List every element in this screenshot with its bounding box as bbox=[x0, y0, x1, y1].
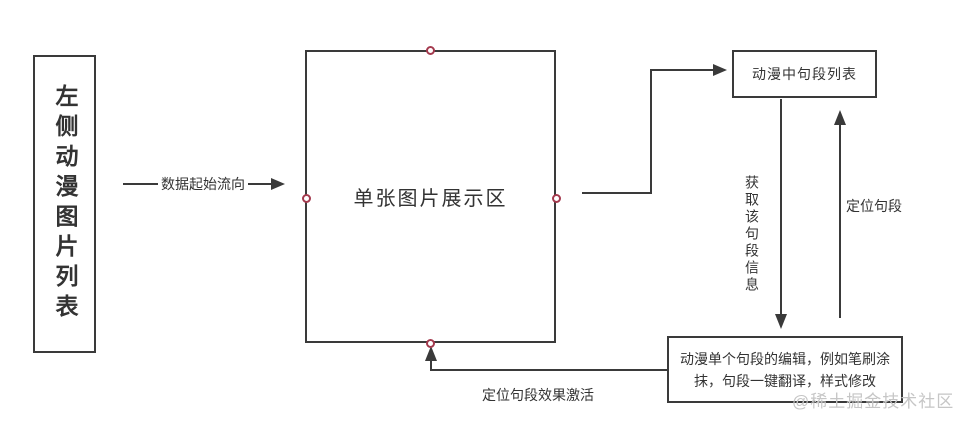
locate-segment-arrow-line bbox=[839, 124, 841, 318]
locate-effect-label: 定位句段效果激活 bbox=[482, 385, 594, 405]
anchor-handle-right bbox=[552, 194, 561, 203]
to-segment-list-arrowhead bbox=[713, 64, 727, 76]
left-image-list-label: 左侧动漫图片列表 bbox=[53, 84, 76, 324]
data-flow-arrowhead bbox=[271, 178, 285, 190]
segment-edit-label: 动漫单个句段的编辑，例如笔刷涂抹，句段一键翻译，样式修改 bbox=[679, 348, 891, 392]
locate-effect-line-a bbox=[431, 369, 667, 371]
to-segment-list-line-b bbox=[650, 69, 652, 194]
get-segment-info-arrow-line bbox=[780, 99, 782, 315]
segment-list-label: 动漫中句段列表 bbox=[752, 64, 857, 84]
watermark: @稀土掘金技术社区 bbox=[792, 387, 954, 412]
get-segment-info-arrowhead bbox=[775, 314, 787, 329]
locate-segment-label: 定位句段 bbox=[846, 196, 902, 216]
anchor-handle-bottom bbox=[426, 339, 435, 348]
to-segment-list-line-c bbox=[650, 69, 714, 71]
get-segment-info-label: 获取该句段信息 bbox=[745, 175, 759, 294]
to-segment-list-line-a bbox=[582, 192, 652, 194]
segment-list-box: 动漫中句段列表 bbox=[732, 50, 877, 98]
locate-segment-arrowhead bbox=[834, 110, 846, 125]
single-image-display-label: 单张图片展示区 bbox=[354, 182, 508, 211]
flow-diagram: 左侧动漫图片列表 数据起始流向 单张图片展示区 动漫中句段列表 获取该句段信息 … bbox=[0, 0, 968, 422]
left-image-list-box: 左侧动漫图片列表 bbox=[33, 55, 96, 353]
anchor-handle-left bbox=[302, 194, 311, 203]
data-flow-label: 数据起始流向 bbox=[158, 174, 248, 194]
anchor-handle-top bbox=[426, 46, 435, 55]
locate-effect-arrowhead bbox=[425, 346, 437, 361]
single-image-display-box: 单张图片展示区 bbox=[305, 50, 556, 343]
